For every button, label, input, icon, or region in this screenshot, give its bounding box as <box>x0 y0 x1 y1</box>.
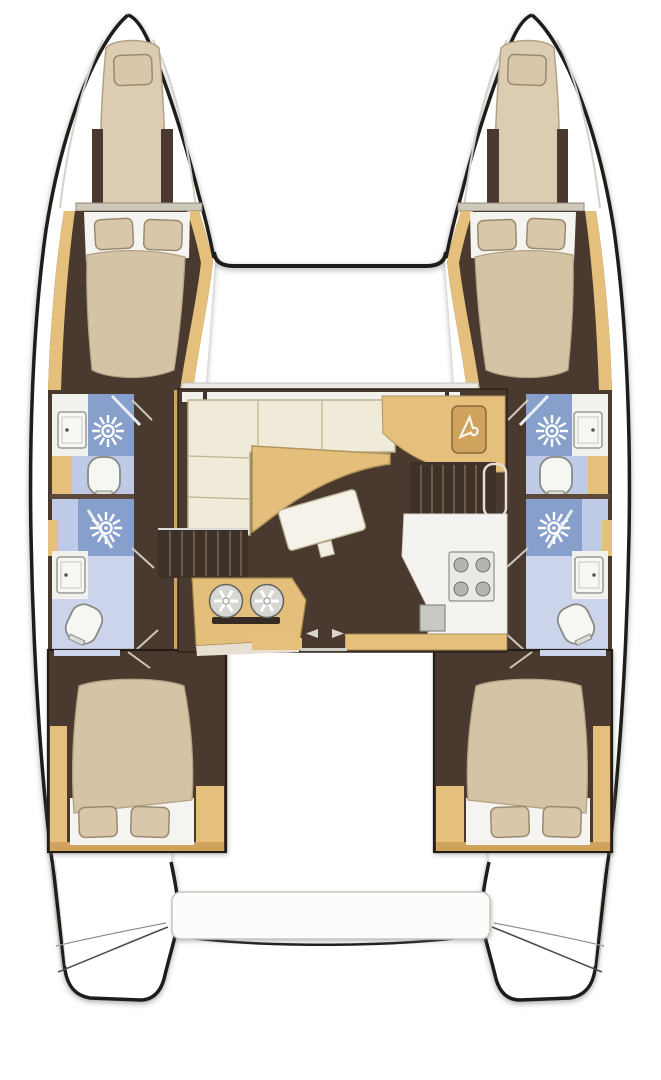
front-crossbeam <box>214 252 446 266</box>
starboard-forward-cabins <box>447 40 612 390</box>
stairs-to-port-hull <box>158 528 248 578</box>
galley-basin <box>210 585 243 618</box>
salon <box>158 383 507 656</box>
galley-sink-console <box>192 578 306 646</box>
wardrobe-locker <box>452 406 486 453</box>
aft-sill <box>252 638 302 650</box>
starboard-aft-cabin <box>434 650 612 852</box>
port-heads-block <box>48 390 178 652</box>
appliance-square <box>420 605 445 631</box>
port-aft-cabin <box>48 650 226 852</box>
console-slot <box>212 617 280 624</box>
catamaran-floor-plan <box>0 0 661 1080</box>
floor-plan-svg <box>0 0 661 1080</box>
aft-sill <box>345 634 507 650</box>
port-forward-cabins <box>48 40 213 390</box>
door-threshold <box>300 648 347 651</box>
galley-basin <box>251 585 284 618</box>
aft-bench-seat <box>172 892 490 939</box>
small-stool <box>318 541 335 558</box>
